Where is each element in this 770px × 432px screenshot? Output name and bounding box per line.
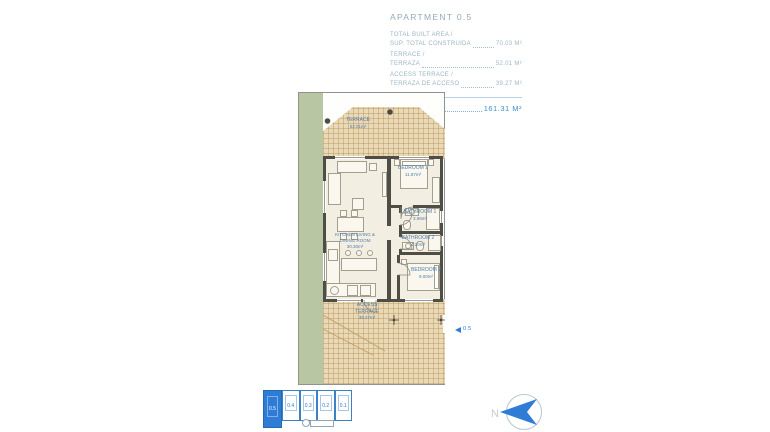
cooktop: [328, 249, 338, 261]
stool: [345, 250, 351, 256]
dotted-leader: [422, 67, 494, 68]
area-label-en: TOTAL BUILT AREA /: [390, 31, 522, 40]
tv-unit: [382, 172, 387, 197]
access-terrace-hatch: [323, 299, 445, 384]
garden-strip: [299, 93, 323, 384]
appliance: [347, 285, 358, 296]
area-value: 39.27 M²: [496, 80, 522, 89]
total-value: 161.31 M²: [484, 104, 522, 113]
room-label-terrace: TERRACE 52.01m²: [337, 117, 379, 129]
dotted-leader: [473, 47, 494, 48]
keyplan-unit-02: 0.2: [317, 390, 335, 421]
kitchen-island: [341, 258, 377, 271]
entry-label: 0.5: [463, 326, 472, 332]
floor-plan: TERRACE 52.01m² BEDROOM 1 11.87m² BATHRO…: [298, 92, 445, 385]
column: [325, 118, 331, 124]
nightstand: [401, 259, 407, 265]
side-table: [369, 163, 377, 171]
room-label-kitchen: KITCHEN LIVING & DINING ROOM 30.30m²: [329, 232, 381, 250]
wall: [387, 240, 391, 302]
keyplan-detail: [310, 420, 334, 427]
stool: [356, 250, 362, 256]
entry-arrow-icon: [455, 327, 461, 333]
room-label-bedroom2: BEDROOM 2 9.00m²: [405, 267, 447, 279]
keyplan-unit-01: 0.1: [335, 390, 353, 421]
chair: [351, 210, 358, 217]
compass: N: [490, 390, 550, 432]
keyplan-unit-03: 0.3: [300, 390, 318, 421]
window: [405, 299, 433, 302]
area-label-es: TERRAZA DE ACCESO: [390, 80, 459, 89]
window: [323, 181, 326, 213]
wall: [399, 231, 443, 234]
coffee-table: [352, 198, 364, 210]
area-label-es: TERRAZA: [390, 60, 420, 69]
keyplan-unit-04: 0.4: [282, 390, 300, 421]
keyplan: 0.5 0.4 0.3 0.2 0.1: [262, 389, 356, 431]
area-label-es: SUP. TOTAL CONSTRUIDA: [390, 40, 471, 49]
window: [335, 156, 365, 159]
area-row-built: TOTAL BUILT AREA / SUP. TOTAL CONSTRUIDA…: [390, 31, 522, 49]
dotted-leader: [461, 87, 493, 88]
room-label-bathroom1: BATHROOM 1 3.99m²: [399, 209, 441, 221]
north-letter: N: [491, 408, 499, 420]
keyplan-unit-05: 0.5: [263, 390, 282, 428]
sofa: [328, 173, 341, 205]
kitchen-sink: [330, 286, 339, 295]
wall: [399, 252, 443, 255]
page-title: APARTMENT 0.5: [390, 12, 522, 22]
wall: [397, 255, 400, 263]
area-row-access-terrace: ACCESS TERRACE / TERRAZA DE ACCESO 39.27…: [390, 71, 522, 89]
keyplan-detail: [302, 419, 310, 427]
area-value: 52.01 M²: [496, 60, 522, 69]
room-label-bathroom2: BATHROOM 2 4.20m²: [397, 235, 439, 247]
wall: [397, 275, 400, 302]
dining-table: [337, 217, 364, 232]
room-label-bedroom1: BEDROOM 1 11.87m²: [392, 165, 434, 177]
wall: [387, 156, 391, 226]
north-arrow-icon: N: [490, 390, 550, 432]
stool: [367, 250, 373, 256]
wall: [440, 156, 443, 302]
toilet: [403, 220, 411, 230]
area-label-en: TERRACE /: [390, 51, 522, 60]
floor-plan-page: APARTMENT 0.5 TOTAL BUILT AREA / SUP. TO…: [0, 0, 770, 432]
sofa: [337, 161, 367, 173]
area-value: 70.03 M²: [496, 40, 522, 49]
wardrobe: [432, 177, 440, 203]
chair: [340, 210, 347, 217]
appliance: [360, 285, 371, 296]
room-label-access-terrace: ACCESS TERRACE 39.27m²: [350, 302, 384, 321]
area-row-terrace: TERRACE / TERRAZA 52.01 M²: [390, 51, 522, 69]
plot-entry-opening: [443, 315, 445, 333]
area-label-en: ACCESS TERRACE /: [390, 71, 522, 80]
